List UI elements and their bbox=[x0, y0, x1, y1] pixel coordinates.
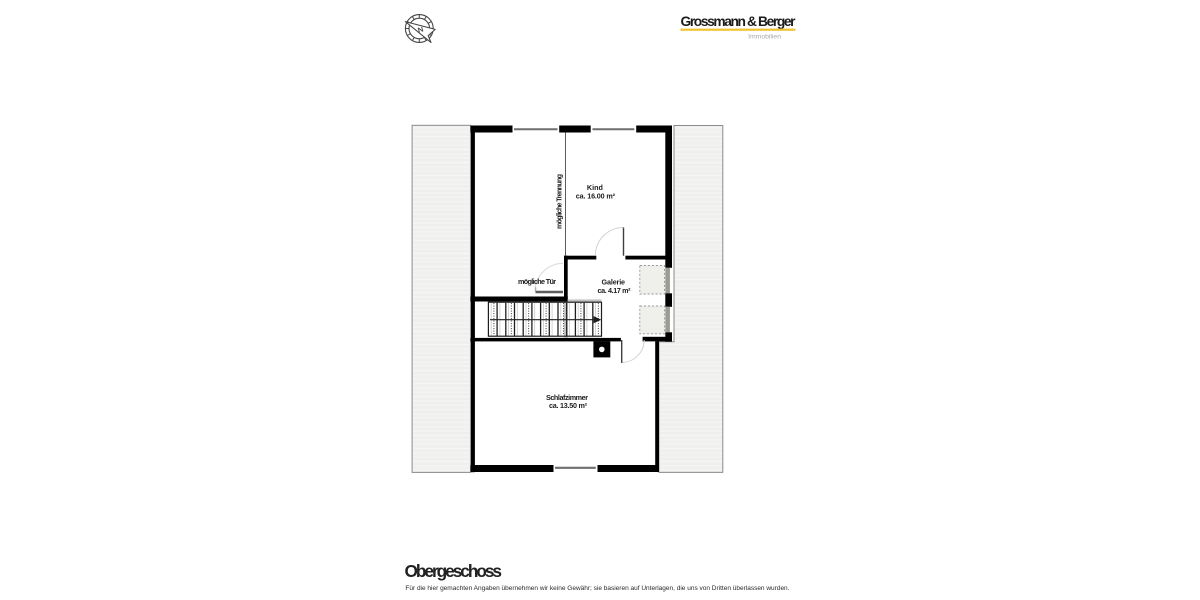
svg-text:Grossmann & Berger: Grossmann & Berger bbox=[681, 14, 797, 29]
svg-text:Obergeschoss: Obergeschoss bbox=[405, 561, 503, 581]
svg-text:Für die hier gemachten Angaben: Für die hier gemachten Angaben übernehme… bbox=[405, 585, 789, 592]
svg-text:mögliche Trennung: mögliche Trennung bbox=[557, 174, 564, 229]
svg-text:ca. 13.50 m²: ca. 13.50 m² bbox=[549, 401, 588, 410]
svg-text:ca. 4.17 m²: ca. 4.17 m² bbox=[598, 286, 632, 295]
svg-text:mögliche Tür: mögliche Tür bbox=[518, 277, 556, 286]
svg-text:ca. 16.00 m²: ca. 16.00 m² bbox=[576, 191, 616, 200]
svg-text:Immobilien: Immobilien bbox=[748, 33, 781, 40]
